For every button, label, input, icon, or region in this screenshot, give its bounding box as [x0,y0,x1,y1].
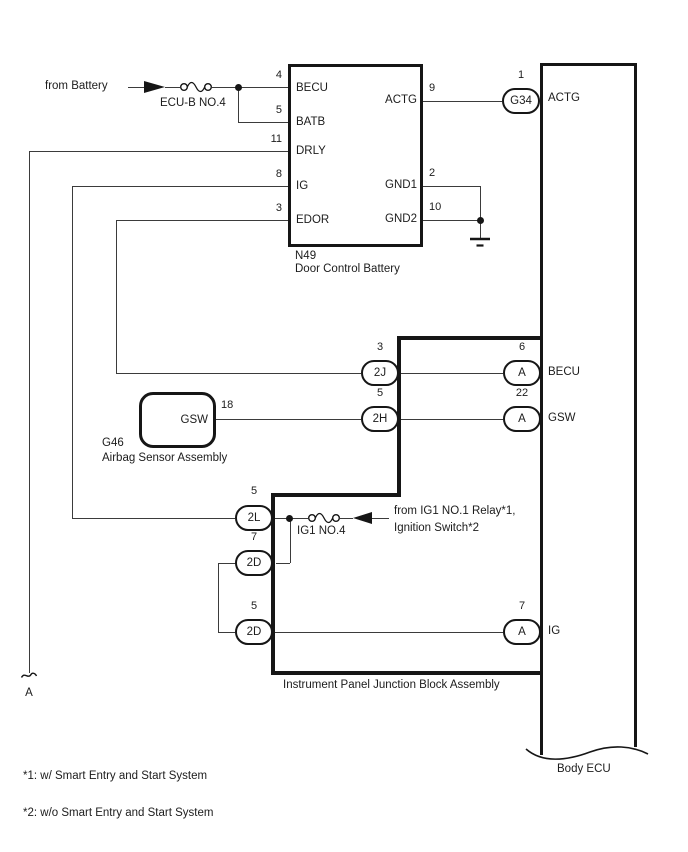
junction-dot [235,84,242,91]
connector-pin-number: 7 [503,600,541,612]
wire-ig1 [276,563,290,564]
wire-ig [273,632,503,633]
connector-a-gsw: A [503,406,541,432]
arrow-right-icon [144,81,165,93]
wire-gnd2 [423,220,480,221]
continuation-squiggle-icon [20,669,38,681]
n49-pin-name: GND1 [385,179,417,192]
n49-pin-number: 10 [429,201,441,213]
junction-dot [477,217,484,224]
connector-2d-upper: 2D [235,550,273,576]
junction-block-border [399,336,543,340]
n49-pin-number: 5 [276,104,282,116]
wire-2d-link [218,632,235,633]
ig1-feed-label: from IG1 NO.1 Relay*1, [394,505,515,518]
n49-pin-name: GND2 [385,213,417,226]
wire-ig1 [372,518,389,519]
wire [128,87,144,88]
fuse-icon [307,510,341,526]
junction-block-name: Instrument Panel Junction Block Assembly [283,679,500,692]
fuse-icon [179,79,213,95]
g46-pin-number: 18 [221,399,233,411]
wire-drly [29,151,288,152]
connector-pin-number: 7 [235,531,273,543]
n49-pin-number: 8 [276,168,282,180]
wire-ig1 [290,518,291,563]
fuse-label: ECU-B NO.4 [160,97,226,110]
wire-2d-link [218,563,236,564]
wiring-diagram: from Battery ECU-B NO.4 A BECU BATB DRLY… [0,0,688,852]
body-ecu-box [634,63,637,747]
wire-ig [72,186,73,518]
n49-pin-name: BATB [296,116,325,129]
junction-block-border [271,493,401,497]
n49-pin-number: 2 [429,167,435,179]
connector-pin-number: 5 [235,600,273,612]
wire-drly [29,151,30,673]
wire-actg [423,101,502,102]
body-ecu-name: Body ECU [557,763,611,776]
footnote-1: *1: w/ Smart Entry and Start System [23,770,207,783]
continuation-label: A [22,687,36,700]
n49-pin-number: 4 [276,69,282,81]
fuse-label: IG1 NO.4 [297,525,346,538]
g46-pin-name: GSW [181,414,208,427]
connector-2h: 2H [361,406,399,432]
wire [238,87,239,122]
n49-pin-name: BECU [296,82,328,95]
connector-2l: 2L [235,505,273,531]
g46-code: G46 [102,437,124,450]
n49-code: N49 [295,250,316,263]
wire [212,87,288,88]
connector-pin-number: 22 [503,387,541,399]
connector-a-ig: A [503,619,541,645]
n49-pin-number: 9 [429,82,435,94]
junction-dot [286,515,293,522]
wire-ig [72,518,235,519]
battery-feed-label: from Battery [45,80,108,93]
n49-name: Door Control Battery [295,263,400,276]
connector-2d-lower: 2D [235,619,273,645]
wire-ig [72,186,288,187]
n49-pin-number: 3 [276,202,282,214]
body-ecu-box [540,63,637,66]
wire-edor [116,220,117,373]
connector-g34: G34 [502,88,540,114]
body-ecu-pin: BECU [548,366,580,379]
wire-edor [116,220,288,221]
body-ecu-pin: GSW [548,412,575,425]
footnote-2: *2: w/o Smart Entry and Start System [23,807,213,820]
wire-becu [399,373,503,374]
n49-pin-name: DRLY [296,145,326,158]
n49-pin-number: 11 [271,133,282,145]
ig1-feed-label: Ignition Switch*2 [394,522,479,535]
wire-gsw [216,419,361,420]
n49-pin-name: EDOR [296,214,329,227]
connector-pin-number: 3 [361,341,399,353]
n49-pin-name: IG [296,180,308,193]
body-ecu-box [540,63,543,755]
connector-pin-number: 1 [502,69,540,81]
ground-icon [466,236,494,250]
wire-2d-link [218,563,219,632]
wire-gnd1 [423,186,480,187]
wire-ig1 [340,518,353,519]
n49-pin-name: ACTG [385,94,417,107]
connector-2j: 2J [361,360,399,386]
wire-gnd1 [480,186,481,220]
connector-pin-number: 5 [235,485,273,497]
wire-gsw [399,419,503,420]
wire-edor [116,373,361,374]
junction-block-border [271,671,543,675]
connector-pin-number: 6 [503,341,541,353]
body-ecu-pin: ACTG [548,92,580,105]
wire [238,122,288,123]
wire [165,87,180,88]
arrow-left-icon [353,512,372,524]
connector-a-becu: A [503,360,541,386]
body-ecu-pin: IG [548,625,560,638]
connector-pin-number: 5 [361,387,399,399]
g46-name: Airbag Sensor Assembly [102,452,227,465]
